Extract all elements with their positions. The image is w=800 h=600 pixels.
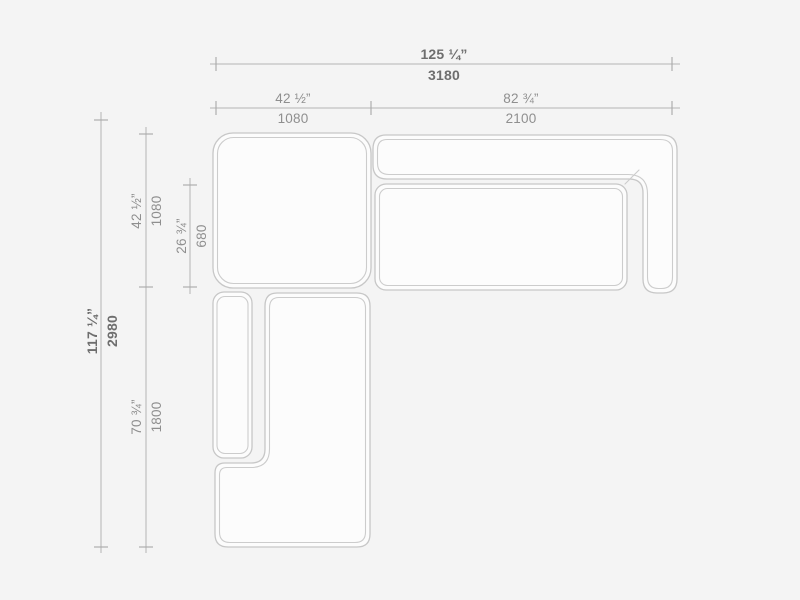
chaise-length-mm-label: 1800 (149, 402, 164, 433)
chaise-armrest-outline (213, 292, 252, 458)
right-module-width-mm-label: 2100 (506, 111, 537, 126)
dimension-lines (94, 57, 680, 553)
seat-depth-mm-label: 680 (194, 224, 209, 247)
left-module-width-inches-label: 42 ½” (275, 91, 311, 106)
overall-width-inches-label: 125 ¼” (420, 46, 467, 62)
right-module-width-inches-label: 82 ¾” (503, 91, 539, 106)
corner-module-depth-inches-label: 42 ½” (129, 193, 144, 229)
overall-depth-mm-label: 2980 (104, 315, 120, 347)
chaise-length-inches-label: 70 ¾” (129, 399, 144, 435)
sofa-seat-cushion-outline (375, 184, 627, 290)
overall-width-mm-label: 3180 (428, 67, 460, 83)
seat-depth-inches-label: 26 ¾” (174, 218, 189, 254)
sofa-dimension-diagram: 125 ¼” 3180 42 ½” 1080 82 ¾” 2100 117 ¼”… (0, 0, 800, 600)
corner-module-outline (213, 133, 371, 288)
corner-module-depth-mm-label: 1080 (149, 196, 164, 227)
sectional-sofa-top-view (213, 133, 677, 547)
technical-drawing-canvas: 125 ¼” 3180 42 ½” 1080 82 ¾” 2100 117 ¼”… (0, 0, 800, 600)
overall-depth-inches-label: 117 ¼” (84, 308, 100, 354)
left-module-width-mm-label: 1080 (278, 111, 309, 126)
